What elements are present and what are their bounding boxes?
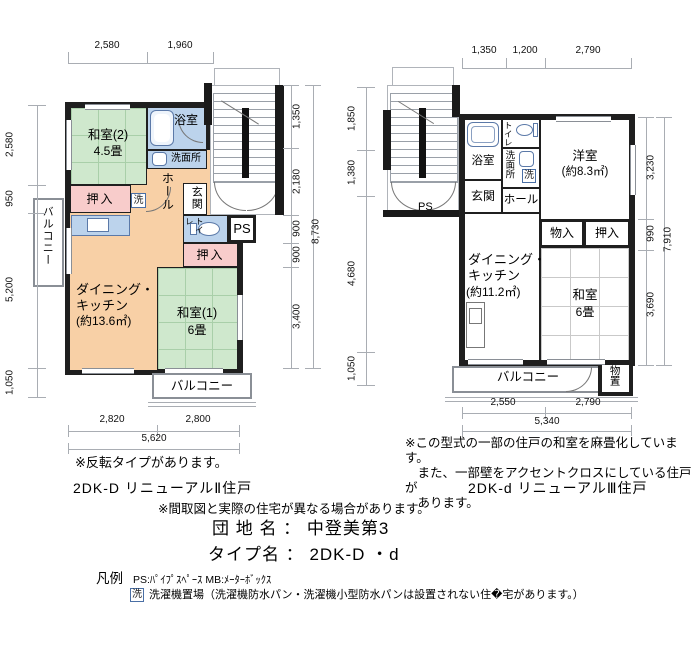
dim-tick bbox=[631, 407, 632, 419]
dim-tick bbox=[213, 52, 214, 64]
laundry-symbol-left: 洗 bbox=[131, 193, 146, 208]
dim-tick bbox=[631, 425, 632, 436]
dim-tick bbox=[357, 150, 375, 151]
window bbox=[82, 368, 134, 374]
dim-label: 2,580 bbox=[5, 125, 16, 165]
room-label-bath: 浴室 bbox=[466, 155, 500, 169]
dim-tick bbox=[28, 368, 46, 369]
dim-tick bbox=[656, 365, 672, 366]
wall bbox=[383, 110, 391, 170]
left-plan-note: ※反転タイプがあります。 bbox=[75, 455, 228, 471]
wall bbox=[275, 85, 284, 215]
room-label-hall: ホール bbox=[502, 194, 540, 208]
room-label-genkan: 玄関 bbox=[189, 186, 202, 214]
window bbox=[66, 228, 72, 274]
dim-label-total: 7,910 bbox=[663, 220, 674, 260]
dim-label: 2,820 bbox=[92, 414, 132, 425]
type-name-line: タイプ名 ： 2DK-D ・d bbox=[208, 545, 400, 565]
wall bbox=[452, 85, 460, 117]
left-plan-title: 2DK-D リニューアルⅡ住戸 bbox=[73, 480, 252, 497]
dim-tick bbox=[28, 397, 46, 398]
kitchen-sink-icon bbox=[469, 308, 482, 324]
wall bbox=[204, 83, 212, 125]
ps-label-right: PS bbox=[418, 201, 433, 214]
window bbox=[66, 120, 72, 170]
dim-label: 1,050 bbox=[5, 363, 16, 403]
disclaimer-note: ※間取図と実際の住宅が異なる場合があります。 bbox=[158, 502, 430, 517]
kitchen-sink-icon bbox=[87, 218, 109, 232]
room-size-dk: (約13.6㎡) bbox=[76, 314, 131, 328]
right-plan-title: 2DK-d リニューアルⅢ住戸 bbox=[468, 480, 648, 497]
dim-label: 3,230 bbox=[646, 148, 657, 188]
dim-label: 1,960 bbox=[160, 40, 200, 51]
legend-title: 凡例 bbox=[96, 571, 123, 587]
dim-label: 900 bbox=[292, 235, 303, 275]
dim-tick bbox=[357, 352, 375, 353]
closet-label-oshiire: 押入 bbox=[585, 226, 629, 240]
toilet-icon bbox=[516, 124, 533, 136]
dim-tick bbox=[283, 368, 299, 369]
dim-tick bbox=[68, 425, 69, 437]
window bbox=[85, 104, 130, 110]
dim-line bbox=[68, 63, 214, 64]
closet-label-monoiri: 物入 bbox=[541, 226, 583, 240]
toilet-tank bbox=[533, 123, 538, 137]
room-label-genkan: 玄関 bbox=[466, 189, 500, 203]
dim-label-total: 5,340 bbox=[527, 416, 567, 427]
window bbox=[237, 295, 243, 340]
window bbox=[547, 359, 605, 365]
room-label-hall: ホール bbox=[160, 172, 174, 218]
balcony-rail-line bbox=[445, 397, 638, 398]
room-size-yoshitsu: (約8.3㎡) bbox=[548, 166, 622, 180]
floor-plan-page: 洗 和室(2) 4.5畳 浴室 洗面所 ホール 玄関 トイレ PS 押入 押入 … bbox=[0, 0, 700, 650]
dim-label: 4,680 bbox=[347, 254, 358, 294]
balcony-rail-line bbox=[148, 402, 256, 403]
dim-tick bbox=[638, 117, 654, 118]
dim-tick bbox=[239, 443, 240, 454]
dim-tick bbox=[357, 87, 375, 88]
dim-line bbox=[462, 413, 632, 414]
ps-label-left: PS bbox=[229, 221, 255, 237]
dim-tick bbox=[631, 58, 632, 68]
dim-label: 5,200 bbox=[5, 270, 16, 310]
room-label-washitsu2: 和室(2) bbox=[76, 128, 140, 143]
dim-tick bbox=[656, 117, 672, 118]
room-label-yoshitsu: 洋室 bbox=[555, 149, 615, 164]
dim-label: 1,350 bbox=[292, 97, 303, 137]
room-label-toilet: トイレ bbox=[503, 121, 513, 147]
dim-tick bbox=[357, 196, 375, 197]
dim-tick bbox=[305, 368, 321, 369]
dim-line bbox=[462, 68, 632, 69]
dim-tick bbox=[506, 58, 507, 68]
dim-label: 1,850 bbox=[347, 99, 358, 139]
dim-tick bbox=[283, 148, 299, 149]
dim-label: 990 bbox=[646, 214, 657, 254]
dim-tick bbox=[357, 385, 375, 386]
dim-tick bbox=[147, 52, 148, 64]
room-label-dk: ダイニング・ キッチン bbox=[76, 282, 154, 313]
dim-label: 1,350 bbox=[464, 45, 504, 56]
estate-name-line: 団 地 名 ： 中登美第3 bbox=[212, 519, 389, 539]
dim-line bbox=[366, 87, 367, 386]
window bbox=[165, 368, 223, 374]
dim-label: 3,400 bbox=[292, 297, 303, 337]
dim-tick bbox=[462, 407, 463, 419]
bathtub-inner bbox=[471, 126, 495, 143]
laundry-symbol-right: 洗 bbox=[522, 169, 536, 183]
room-label-toilet: トイレ bbox=[184, 217, 204, 242]
dim-tick bbox=[28, 105, 46, 106]
dim-label: 950 bbox=[5, 179, 16, 219]
dim-tick bbox=[68, 52, 69, 64]
dim-label: 1,200 bbox=[505, 45, 545, 56]
room-size-washitsu: 6畳 bbox=[555, 305, 615, 319]
room-label-bath: 浴室 bbox=[168, 113, 204, 127]
sink-icon bbox=[152, 152, 167, 166]
room-label-washitsu1: 和室(1) bbox=[167, 306, 227, 321]
closet-label-oshiire1: 押入 bbox=[76, 192, 125, 206]
dim-label: 2,790 bbox=[568, 397, 608, 408]
window bbox=[556, 116, 611, 122]
dim-label: 2,580 bbox=[87, 40, 127, 51]
dim-tick bbox=[239, 425, 240, 437]
room-size-dk: (約11.2㎡) bbox=[466, 285, 520, 299]
dim-label-total: 8,730 bbox=[311, 212, 322, 252]
dim-tick bbox=[545, 58, 546, 68]
closet-label-oshiire2: 押入 bbox=[186, 248, 235, 262]
legend-laundry-text: 洗濯機置場（洗濯機防水パン・洗濯機小型防水パンは設置されない住�宅があります。） bbox=[149, 589, 584, 602]
dim-label: 2,800 bbox=[178, 414, 218, 425]
dim-label: 2,790 bbox=[568, 45, 608, 56]
room-washitsu-right bbox=[540, 247, 630, 361]
dim-line bbox=[37, 105, 38, 398]
window bbox=[468, 359, 523, 365]
room-label-senmenjo: 洗面所 bbox=[166, 153, 206, 165]
dim-label: 2,180 bbox=[292, 162, 303, 202]
dim-label: 2,550 bbox=[483, 397, 523, 408]
room-label-washitsu: 和室 bbox=[555, 288, 615, 303]
balcony-left-label: バルコニー bbox=[40, 206, 53, 286]
dim-line bbox=[68, 449, 240, 450]
balcony-bottom-label: バルコニー bbox=[160, 379, 244, 394]
dim-tick bbox=[462, 58, 463, 68]
dim-tick bbox=[68, 443, 69, 454]
room-label-dk: ダイニング・ キッチン bbox=[468, 252, 546, 283]
right-plan-note: ※この型式の一部の住戸の和室を麻畳化しています。 また、一部壁をアクセントクロス… bbox=[405, 436, 700, 511]
dim-tick bbox=[638, 365, 654, 366]
room-size-washitsu1: 6畳 bbox=[167, 323, 227, 337]
dim-tick bbox=[305, 85, 321, 86]
sink-icon bbox=[519, 151, 534, 167]
storage-label: 物置 bbox=[608, 365, 621, 393]
dim-tick bbox=[28, 185, 46, 186]
dim-label-total: 5,620 bbox=[134, 433, 174, 444]
balcony-rail-line bbox=[148, 406, 256, 407]
dim-tick bbox=[283, 85, 299, 86]
dim-line bbox=[462, 431, 632, 432]
room-size-washitsu2: 4.5畳 bbox=[76, 144, 140, 158]
dim-label: 3,690 bbox=[646, 285, 657, 325]
dim-label: 1,380 bbox=[347, 153, 358, 193]
dim-tick bbox=[462, 425, 463, 436]
window bbox=[630, 145, 636, 195]
room-label-senmenjo: 洗面所 bbox=[503, 150, 514, 187]
balcony-rail-line bbox=[445, 401, 638, 402]
dim-line bbox=[68, 431, 240, 432]
balcony-label-right-plan: バルコニー bbox=[486, 370, 570, 385]
dim-tick bbox=[28, 213, 46, 214]
legend-ps-mb: PS:ﾊﾟｲﾌﾟｽﾍﾟｰｽ MB:ﾒｰﾀｰﾎﾞｯｸｽ bbox=[133, 574, 271, 587]
legend-laundry-symbol: 洗 bbox=[130, 588, 144, 602]
dim-label: 1,050 bbox=[347, 349, 358, 389]
